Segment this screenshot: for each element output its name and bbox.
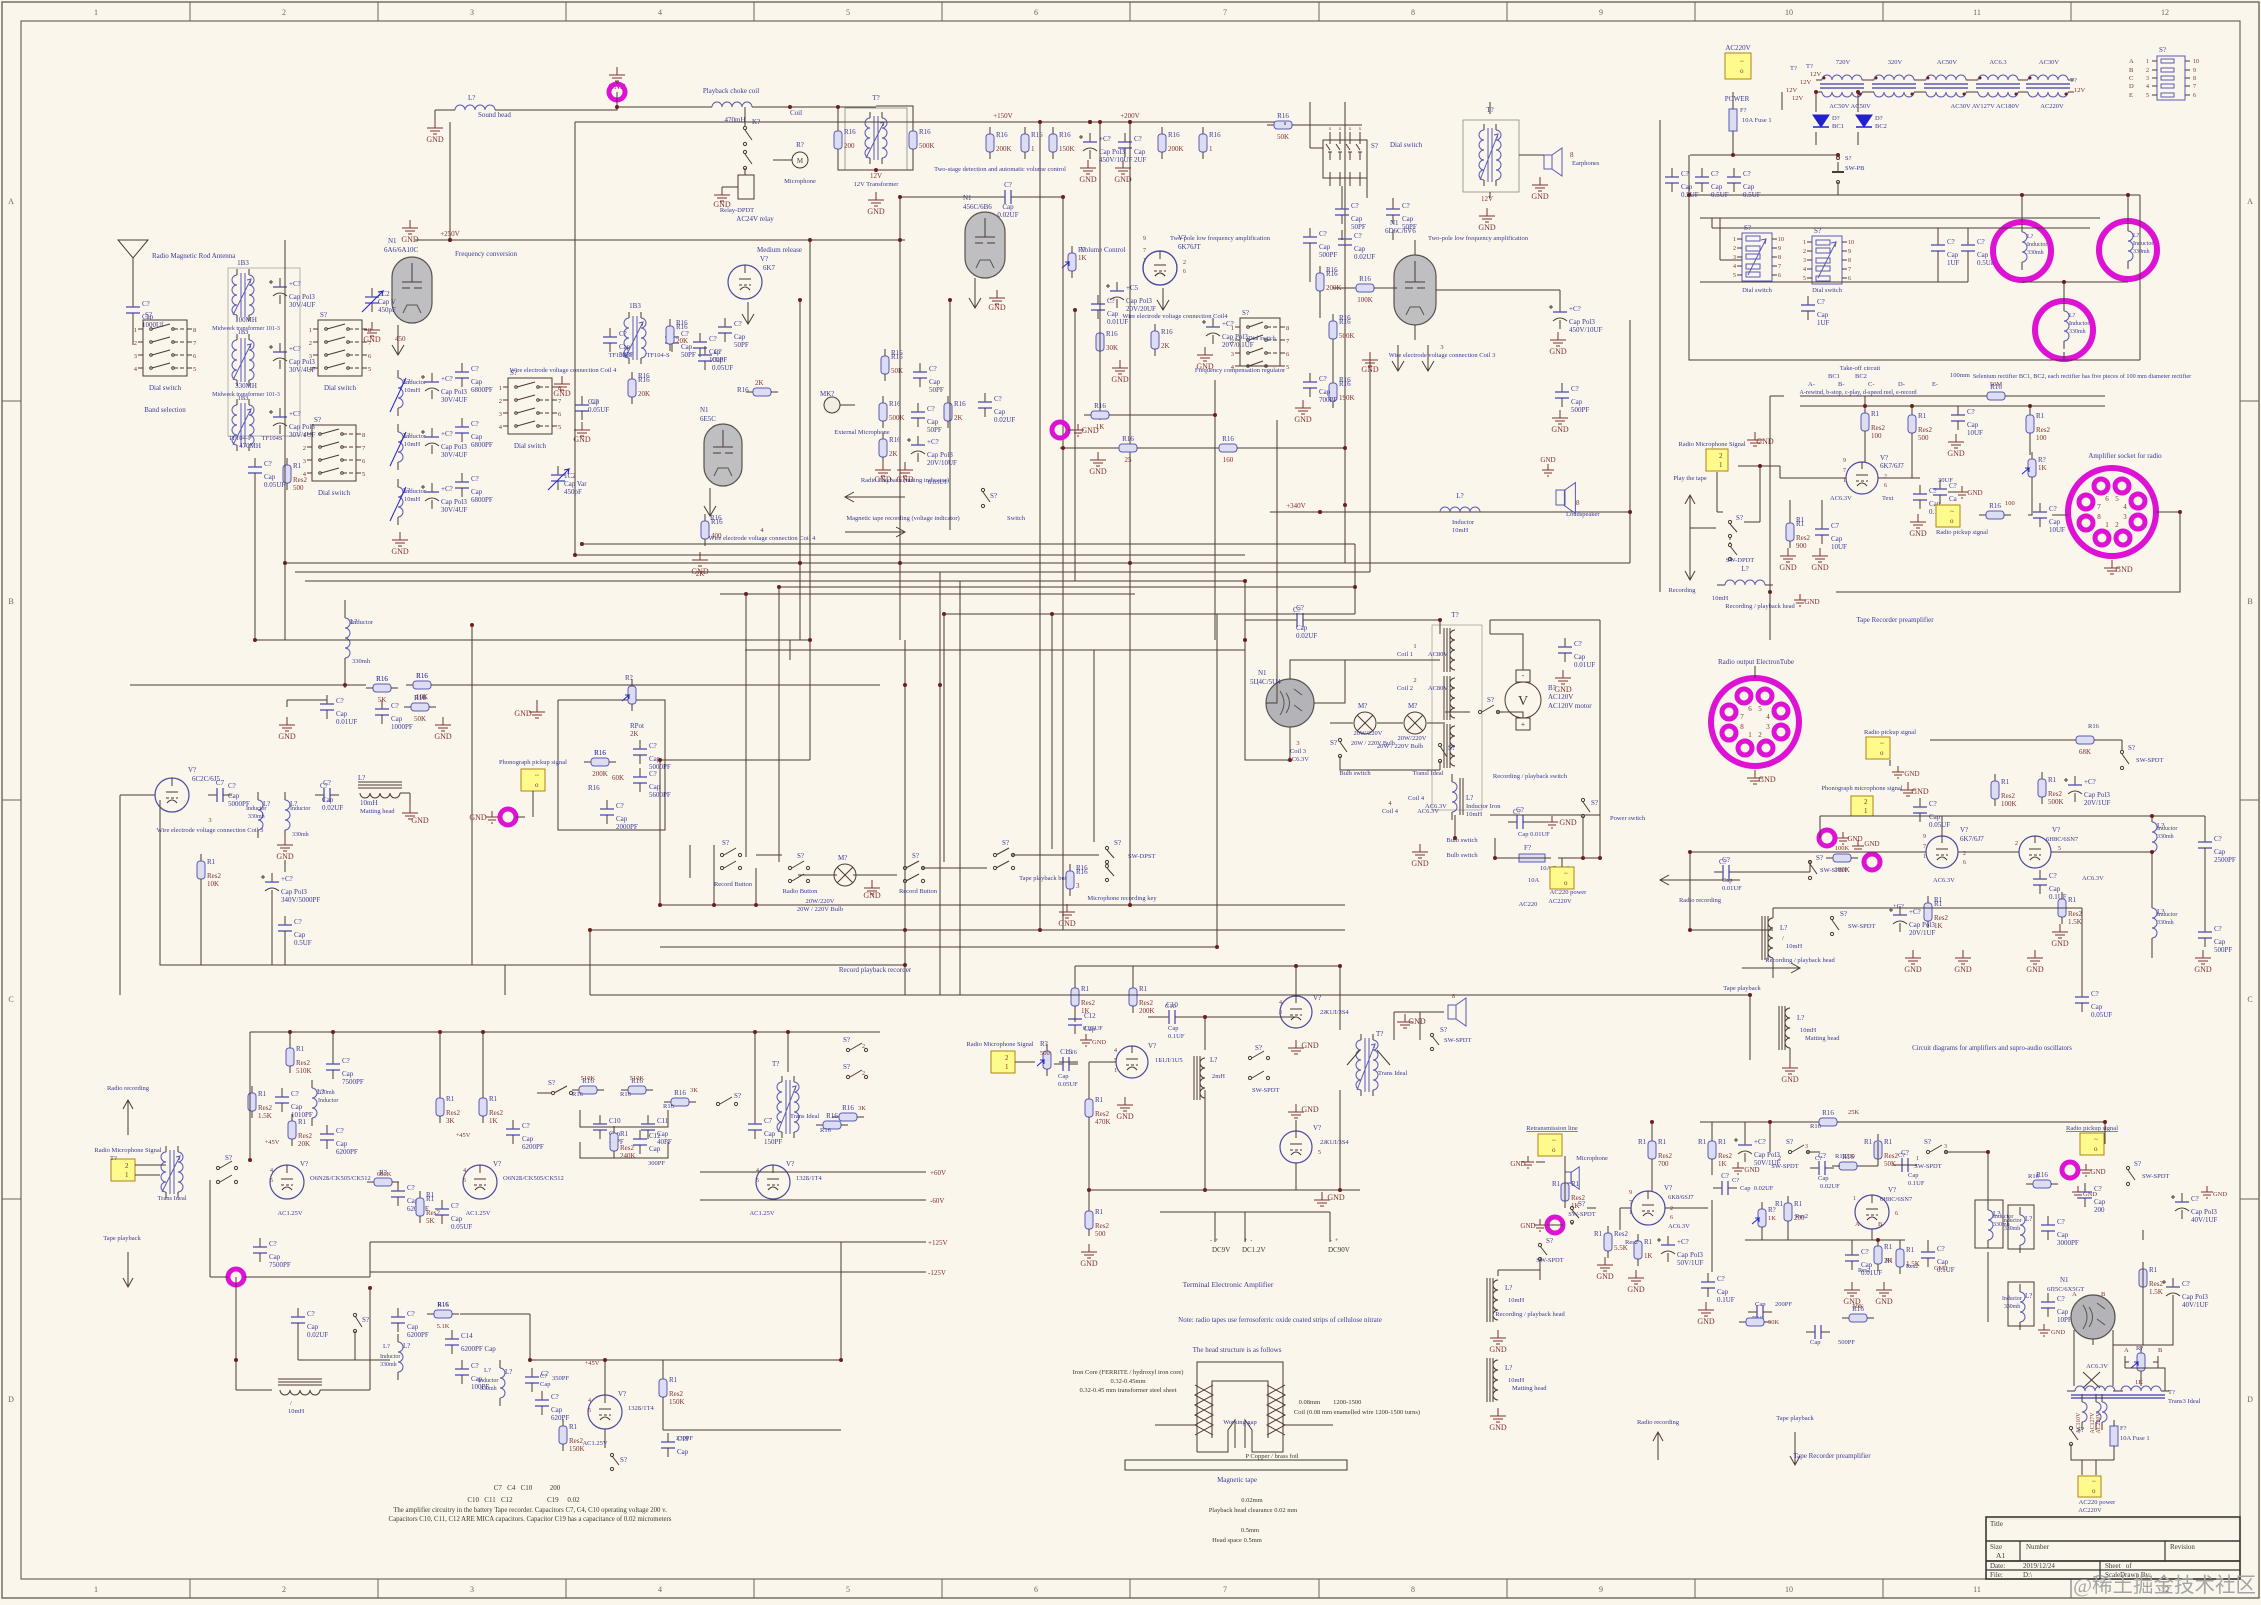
svg-text:C?: C? — [336, 1127, 344, 1135]
svg-text:2: 2 — [2146, 68, 2149, 74]
svg-text:GND: GND — [1520, 1222, 1535, 1230]
svg-text:+C?: +C? — [1893, 903, 1904, 910]
svg-text:S?: S? — [320, 311, 327, 319]
svg-text:7: 7 — [1629, 1200, 1632, 1206]
svg-text:R1: R1 — [1918, 412, 1927, 420]
svg-text:S?: S? — [548, 1079, 555, 1087]
svg-text:4: 4 — [1114, 1048, 1117, 1054]
svg-text:F?: F? — [1524, 844, 1531, 852]
svg-text:450pF: 450pF — [564, 488, 582, 496]
svg-text:Radio recording: Radio recording — [1637, 1419, 1680, 1426]
svg-text:5: 5 — [756, 1178, 759, 1184]
svg-text:Inductor Iron: Inductor Iron — [1466, 803, 1501, 810]
svg-text:GND: GND — [1954, 965, 1972, 974]
svg-text:V?: V? — [760, 255, 768, 263]
svg-text:V?: V? — [1148, 1042, 1156, 1050]
svg-text:620PF: 620PF — [551, 1414, 569, 1422]
svg-text:GND: GND — [1301, 1105, 1319, 1114]
svg-text:Cap: Cap — [1717, 1288, 1729, 1296]
svg-text:1K: 1K — [2135, 1379, 2143, 1386]
svg-text:S?: S? — [797, 852, 804, 860]
svg-text:1.5K: 1.5K — [258, 1112, 272, 1120]
svg-text:R1: R1 — [293, 462, 302, 470]
svg-text:C?: C? — [927, 405, 935, 413]
svg-text:Inductor: Inductor — [2157, 912, 2177, 918]
svg-text:A1: A1 — [1996, 1551, 2005, 1560]
svg-text:100MH: 100MH — [235, 316, 257, 324]
svg-text:C12: C12 — [649, 1132, 661, 1140]
svg-text:Res2: Res2 — [2149, 1280, 2164, 1288]
svg-text:0.02UF: 0.02UF — [322, 804, 343, 812]
svg-text:2mH: 2mH — [1212, 1073, 1225, 1080]
svg-text:Cap: Cap — [336, 710, 348, 718]
svg-text:20W / 220V Bulb: 20W / 220V Bulb — [797, 906, 843, 913]
svg-text:C?: C? — [2057, 1295, 2065, 1303]
svg-text:Radio pickup signal: Radio pickup signal — [2066, 1125, 2118, 1132]
svg-text:Two-stage detection and automa: Two-stage detection and automatic volume… — [934, 166, 1066, 173]
svg-text:Cap: Cap — [1681, 183, 1693, 191]
svg-text:12V: 12V — [1481, 195, 1493, 203]
svg-text:AC50V: AC50V — [1937, 59, 1958, 66]
svg-text:GND: GND — [1531, 192, 1549, 201]
svg-text:0.01UF: 0.01UF — [1574, 661, 1595, 669]
svg-text:900: 900 — [1796, 542, 1807, 550]
svg-text:C?: C? — [1929, 800, 1937, 808]
svg-text:SW-DPDT: SW-DPDT — [1726, 557, 1755, 564]
svg-text:+: + — [1521, 720, 1526, 729]
svg-text:SW-SPDT: SW-SPDT — [1568, 1211, 1595, 1218]
svg-text:3: 3 — [1279, 1010, 1282, 1016]
svg-text:BC2: BC2 — [1875, 123, 1887, 130]
svg-text:30V/4UF: 30V/4UF — [441, 451, 468, 459]
svg-text:GND: GND — [1864, 840, 1879, 848]
svg-text:AC220V: AC220V — [2078, 1507, 2102, 1514]
svg-text:R?: R? — [2038, 456, 2046, 464]
svg-text:3: 3 — [1296, 740, 1299, 747]
svg-text:N1: N1 — [963, 194, 972, 202]
svg-text:60K: 60K — [612, 774, 624, 782]
svg-text:0.05UF: 0.05UF — [588, 406, 609, 414]
svg-text:R1: R1 — [2149, 1266, 2158, 1274]
svg-text:C?: C? — [734, 320, 742, 328]
svg-text:Trans Ideal: Trans Ideal — [157, 1195, 186, 1202]
svg-text:Cap: Cap — [1296, 624, 1308, 632]
svg-text:GND: GND — [1804, 598, 1819, 606]
svg-text:6D6C/6V6: 6D6C/6V6 — [1385, 227, 1416, 235]
svg-text:AC6.3V: AC6.3V — [1933, 877, 1955, 884]
svg-text:3: 3 — [1805, 1144, 1808, 1150]
svg-text:C14: C14 — [461, 1332, 473, 1340]
svg-text:F?: F? — [2120, 1425, 2127, 1432]
svg-text:V?: V? — [1880, 454, 1888, 462]
svg-text:~: ~ — [1564, 870, 1568, 878]
svg-text:C?: C? — [994, 395, 1002, 403]
svg-text:510K: 510K — [630, 1075, 645, 1082]
svg-text:Iron Core (FERRITE / hydroxyl: Iron Core (FERRITE / hydroxyl iron core) — [1073, 1369, 1184, 1376]
svg-text:R1: R1 — [1552, 1180, 1561, 1188]
svg-text:S?: S? — [1330, 739, 1337, 747]
svg-text:V?: V? — [2052, 826, 2060, 834]
svg-text:10: 10 — [1778, 237, 1784, 243]
svg-text:R1: R1 — [1594, 1230, 1603, 1238]
svg-text:- +: - + — [1330, 1238, 1339, 1244]
svg-text:R1: R1 — [1906, 1246, 1915, 1254]
svg-text:R16: R16 — [1076, 864, 1088, 872]
svg-text:2K: 2K — [1161, 342, 1170, 350]
svg-text:Cap: Cap — [1831, 535, 1843, 543]
svg-text:Cap: Cap — [994, 408, 1006, 416]
svg-text:C?: C? — [1319, 230, 1327, 238]
svg-text:2: 2 — [1884, 474, 1887, 480]
svg-text:9: 9 — [1599, 8, 1603, 17]
svg-text:Cap: Cap — [551, 1406, 563, 1414]
svg-text:100mm: 100mm — [1950, 372, 1970, 379]
svg-text:V?: V? — [1960, 826, 1968, 834]
svg-text:2K: 2K — [755, 379, 764, 387]
svg-text:1.5K: 1.5K — [2068, 918, 2082, 926]
svg-text:R1: R1 — [1871, 410, 1880, 418]
svg-text:1: 1 — [1923, 854, 1926, 860]
svg-text:C?: C? — [1721, 1172, 1729, 1180]
svg-text:R1: R1 — [2001, 778, 2010, 786]
svg-text:7: 7 — [1848, 267, 1851, 273]
svg-text:0.1UF: 0.1UF — [1717, 1296, 1735, 1304]
svg-text:C?: C? — [471, 365, 479, 373]
svg-text:C?: C? — [1817, 298, 1825, 306]
svg-text:R16: R16 — [1989, 502, 2001, 510]
svg-text:Res2: Res2 — [489, 1109, 504, 1117]
svg-text:+150V: +150V — [993, 112, 1013, 120]
svg-text:6: 6 — [1034, 1585, 1038, 1594]
svg-text:6: 6 — [1848, 276, 1851, 282]
svg-text:- +: - + — [1210, 1238, 1219, 1244]
svg-text:Inductor: Inductor — [2027, 242, 2047, 248]
svg-text:SW-DPST: SW-DPST — [1128, 853, 1155, 860]
svg-text:Cap: Cap — [2057, 1308, 2069, 1316]
svg-text:+60V: +60V — [930, 1169, 946, 1177]
svg-text:R16: R16 — [414, 694, 426, 702]
svg-text:Cap: Cap — [307, 1323, 319, 1331]
svg-text:S?: S? — [1816, 854, 1823, 862]
svg-text:GND: GND — [363, 335, 381, 344]
svg-text:SW-SPDT: SW-SPDT — [1444, 1037, 1471, 1044]
svg-text:3K: 3K — [446, 1117, 455, 1125]
svg-text:6800PF: 6800PF — [471, 441, 493, 449]
svg-text:3: 3 — [1803, 258, 1806, 264]
svg-text:5: 5 — [362, 471, 365, 478]
svg-text:456C/6B6: 456C/6B6 — [963, 203, 992, 211]
svg-text:2: 2 — [303, 445, 306, 452]
svg-text:D?: D? — [1832, 115, 1840, 122]
svg-text:R16: R16 — [594, 749, 606, 757]
svg-text:5: 5 — [1758, 705, 1762, 713]
svg-text:AC6.3V: AC6.3V — [1830, 495, 1852, 502]
svg-text:C?: C? — [2094, 1185, 2102, 1193]
svg-text:Amplifier socket for radio: Amplifier socket for radio — [2088, 452, 2162, 460]
svg-text:1B3: 1B3 — [629, 302, 641, 310]
svg-text:C?: C? — [1929, 487, 1937, 495]
svg-text:1: 1 — [1803, 240, 1806, 246]
svg-text:Cap: Cap — [451, 1215, 463, 1223]
svg-text:GND: GND — [1540, 456, 1555, 464]
svg-text:Cap: Cap — [1107, 310, 1119, 318]
svg-text:3: 3 — [2123, 513, 2127, 521]
svg-text:1K: 1K — [489, 1117, 498, 1125]
svg-text:C?: C? — [269, 1240, 277, 1248]
svg-text:5: 5 — [1803, 276, 1806, 282]
svg-text:Cap: Cap — [734, 333, 746, 341]
svg-text:Res2: Res2 — [1918, 426, 1933, 434]
svg-text:50K: 50K — [1277, 133, 1289, 141]
svg-text:Loudspeaker: Loudspeaker — [1566, 511, 1600, 518]
svg-text:GND: GND — [2115, 565, 2133, 574]
svg-text:Cap: Cap — [1574, 653, 1586, 661]
svg-text:Trans3 Ideal: Trans3 Ideal — [2168, 1398, 2201, 1405]
svg-text:1: 1 — [1853, 1196, 1856, 1202]
svg-text:C?: C? — [2057, 1218, 2065, 1226]
svg-text:10mH: 10mH — [1712, 595, 1729, 602]
svg-text:Cap: Cap — [1818, 1175, 1828, 1182]
svg-text:GND: GND — [1967, 489, 1982, 497]
svg-text:10mH: 10mH — [288, 1408, 305, 1415]
svg-text:Inductor: Inductor — [351, 619, 374, 626]
svg-text:6: 6 — [1034, 8, 1038, 17]
svg-text:GND: GND — [1934, 1265, 1948, 1272]
svg-text:L?: L? — [403, 1342, 410, 1350]
svg-text:A: A — [8, 197, 14, 206]
svg-text:L?: L? — [358, 774, 365, 782]
svg-text:Cap: Cap — [588, 398, 600, 406]
svg-text:Inductor: Inductor — [404, 379, 427, 386]
svg-text:/: / — [1782, 935, 1784, 942]
svg-text:Radio pickup signal: Radio pickup signal — [1936, 529, 1988, 536]
svg-text:GND: GND — [1847, 835, 1862, 843]
svg-text:C?: C? — [1107, 297, 1115, 305]
svg-text:3: 3 — [208, 817, 211, 824]
svg-text:Res2: Res2 — [258, 1104, 273, 1112]
svg-text:+C?: +C? — [441, 485, 453, 493]
svg-text:0.05UF: 0.05UF — [1083, 1025, 1103, 1032]
svg-text:S?: S? — [2128, 744, 2135, 752]
svg-text:R1: R1 — [1864, 1138, 1873, 1146]
svg-text:6E5C: 6E5C — [700, 415, 716, 423]
svg-text:GND: GND — [553, 389, 571, 398]
svg-text:7500PF: 7500PF — [342, 1078, 364, 1086]
svg-text:R16: R16 — [1168, 131, 1180, 139]
svg-text:Recording / playback head: Recording / playback head — [1725, 603, 1795, 610]
svg-text:C?: C? — [471, 475, 479, 483]
svg-text:132Б/1T4: 132Б/1T4 — [628, 1405, 655, 1412]
svg-text:Res2: Res2 — [1871, 424, 1886, 432]
svg-text:The head structure is as follo: The head structure is as follows — [1193, 1346, 1282, 1354]
svg-text:Res2: Res2 — [1095, 1222, 1110, 1230]
svg-text:0.01UF: 0.01UF — [336, 718, 357, 726]
svg-text:Cap: Cap — [1058, 1073, 1068, 1080]
svg-text:R1: R1 — [1571, 1180, 1580, 1188]
svg-text:5: 5 — [463, 1178, 466, 1184]
svg-text:Res2: Res2 — [2068, 910, 2083, 918]
svg-text:2: 2 — [1231, 338, 1234, 345]
svg-text:Coil 4: Coil 4 — [1408, 795, 1425, 802]
svg-text:Wire electrode voltage connect: Wire electrode voltage connection Coil 3 — [1389, 352, 1496, 359]
svg-text:+45V: +45V — [456, 1132, 471, 1139]
svg-text:5.1K: 5.1K — [437, 1323, 450, 1330]
svg-text:1: 1 — [2146, 59, 2149, 65]
svg-text:GND: GND — [1627, 1285, 1645, 1294]
svg-text:Cap: Cap — [1908, 1172, 1918, 1179]
svg-text:R16: R16 — [710, 514, 722, 522]
svg-text:1: 1 — [94, 8, 98, 17]
svg-text:Cap Pol3: Cap Pol3 — [2191, 1208, 2217, 1216]
svg-text:30V/4UF: 30V/4UF — [441, 506, 468, 514]
svg-text:The amplifier circuitry in the: The amplifier circuitry in the battery T… — [393, 1507, 667, 1514]
svg-text:6H8C/6SN7: 6H8C/6SN7 — [1880, 1196, 1913, 1203]
svg-text:+C?: +C? — [441, 430, 453, 438]
svg-text:Inductor: Inductor — [1452, 519, 1475, 526]
svg-text:V?: V? — [188, 766, 196, 774]
svg-text:0.05UF: 0.05UF — [928, 479, 948, 486]
svg-text:Res2: Res2 — [1081, 999, 1096, 1007]
svg-text:0.08mm 1200-1500: 0.08mm 1200-1500 — [1299, 1399, 1362, 1406]
svg-text:Tape playback: Tape playback — [103, 1235, 141, 1242]
svg-text:Dial switch: Dial switch — [324, 384, 357, 392]
svg-text:C?: C? — [1815, 1155, 1822, 1162]
svg-text:Res2: Res2 — [296, 1059, 311, 1067]
svg-text:File:: File: — [1990, 1571, 2003, 1579]
svg-text:Coil: Coil — [790, 109, 802, 117]
svg-text:Working gap: Working gap — [1223, 1419, 1257, 1426]
svg-text:C?: C? — [471, 420, 479, 428]
svg-text:7: 7 — [1223, 1585, 1227, 1594]
svg-text:C?: C? — [471, 1362, 479, 1370]
svg-text:470K: 470K — [1095, 1118, 1111, 1126]
svg-text:C?: C? — [1967, 408, 1975, 416]
svg-text:6: 6 — [1884, 483, 1887, 489]
svg-text:Trans Ideal: Trans Ideal — [1378, 1070, 1407, 1077]
svg-text:V?: V? — [618, 1390, 626, 1398]
svg-text:+C?: +C? — [1099, 135, 1111, 143]
svg-text:330mh: 330mh — [2004, 1304, 2020, 1310]
svg-text:500PF: 500PF — [1571, 406, 1589, 414]
svg-text:/: / — [290, 1400, 292, 1407]
svg-text:GND: GND — [1489, 1423, 1507, 1432]
svg-text:10PF: 10PF — [2057, 1316, 2072, 1324]
svg-text:M: M — [797, 157, 804, 165]
svg-text:B: B — [2247, 597, 2252, 606]
svg-text:Note: radio tapes use ferrosof: Note: radio tapes use ferrosoferric oxid… — [1178, 1316, 1382, 1324]
svg-text:2: 2 — [1778, 1156, 1781, 1162]
svg-text:GND: GND — [1081, 426, 1099, 435]
svg-text:GND: GND — [1947, 449, 1965, 458]
svg-text:50PF: 50PF — [927, 426, 942, 434]
svg-text:12V: 12V — [2074, 87, 2086, 94]
svg-text:R16: R16 — [1209, 131, 1221, 139]
svg-text:Inductor: Inductor — [404, 433, 427, 440]
svg-text:GND: GND — [1551, 425, 1569, 434]
svg-text:T?: T? — [872, 94, 879, 102]
svg-text:C?: C? — [1898, 1152, 1905, 1159]
svg-text:Earphones: Earphones — [1572, 160, 1600, 167]
svg-text:Bulb switch: Bulb switch — [1446, 852, 1478, 859]
svg-text:+C?: +C? — [281, 875, 293, 883]
svg-text:Res2: Res2 — [426, 1209, 441, 1217]
svg-text:Inductor: Inductor — [478, 1378, 498, 1384]
svg-text:D: D — [2247, 1395, 2253, 1404]
svg-text:Inductor: Inductor — [380, 1354, 400, 1360]
svg-text:0.05UF: 0.05UF — [2091, 1011, 2112, 1019]
svg-text:S?: S? — [2134, 1160, 2141, 1168]
svg-text:Cap: Cap — [269, 1253, 281, 1261]
svg-text:Cap Pol3: Cap Pol3 — [441, 388, 467, 396]
svg-text:C?: C? — [649, 742, 657, 750]
svg-text:GND: GND — [1909, 529, 1927, 538]
svg-text:GND: GND — [1408, 1017, 1426, 1026]
svg-text:Microphone: Microphone — [1576, 1155, 1608, 1162]
svg-text:12V: 12V — [1800, 79, 1812, 86]
svg-text:GND: GND — [278, 732, 296, 741]
svg-text:L?: L? — [505, 1368, 512, 1376]
svg-text:B: B — [2158, 1347, 2163, 1354]
svg-text:E-: E- — [1932, 381, 1938, 388]
svg-text:Res2: Res2 — [569, 1437, 584, 1445]
svg-text:50K: 50K — [891, 367, 903, 375]
svg-text:R1: R1 — [1139, 985, 1148, 993]
svg-text:3: 3 — [1766, 723, 1770, 731]
svg-text:330mh: 330mh — [2069, 329, 2086, 335]
svg-text:V: V — [1518, 694, 1528, 709]
svg-text:4: 4 — [1733, 264, 1736, 270]
svg-text:Coil 3: Coil 3 — [1290, 748, 1306, 755]
svg-text:R16: R16 — [1161, 328, 1173, 336]
svg-text:B: B — [8, 597, 13, 606]
svg-text:1: 1 — [1733, 237, 1736, 243]
svg-text:Frequency compensation regulat: Frequency compensation regulator — [1195, 367, 1286, 374]
svg-text:GND: GND — [1116, 1112, 1134, 1121]
svg-text:Wire electrode voltage connect: Wire electrode voltage connection Coil 4 — [510, 367, 618, 374]
svg-text:GND: GND — [1111, 375, 1129, 384]
svg-text:SW-SPDT: SW-SPDT — [1848, 923, 1875, 930]
svg-text:S?: S? — [843, 1063, 850, 1071]
svg-text:@稀土掘金技术社区: @稀土掘金技术社区 — [2073, 1574, 2256, 1597]
svg-text:C?: C? — [2191, 1195, 2199, 1203]
svg-text:R16: R16 — [919, 128, 931, 136]
svg-text:Cap: Cap — [291, 1103, 303, 1111]
svg-text:C-: C- — [1868, 381, 1875, 388]
svg-text:+C?: +C? — [927, 438, 939, 446]
svg-text:4: 4 — [463, 1168, 466, 1174]
svg-text:5: 5 — [2115, 495, 2119, 503]
svg-text:1K: 1K — [1644, 1252, 1653, 1260]
svg-text:2: 2 — [2015, 841, 2018, 847]
svg-text:S?: S? — [1255, 1044, 1262, 1052]
svg-text:450pF: 450pF — [378, 306, 396, 314]
svg-text:M?: M? — [838, 854, 847, 862]
svg-text:7: 7 — [1778, 264, 1781, 270]
svg-text:2: 2 — [309, 340, 312, 347]
svg-text:Cap: Cap — [407, 1323, 419, 1331]
svg-text:B: B — [2129, 67, 2134, 74]
svg-text:Cap: Cap — [927, 418, 939, 426]
svg-text:Cap: Cap — [1354, 245, 1366, 253]
svg-text:6: 6 — [1183, 269, 1186, 275]
svg-text:T?: T? — [1790, 65, 1797, 72]
svg-text:330mh: 330mh — [2157, 834, 2174, 840]
svg-text:30K: 30K — [1106, 344, 1118, 352]
svg-text:Radio recording: Radio recording — [107, 1085, 150, 1092]
svg-text:0.02mm: 0.02mm — [1241, 1497, 1263, 1504]
svg-text:Head space 0.5mm: Head space 0.5mm — [1212, 1537, 1262, 1544]
svg-text:Playback choke coil: Playback choke coil — [703, 87, 759, 95]
